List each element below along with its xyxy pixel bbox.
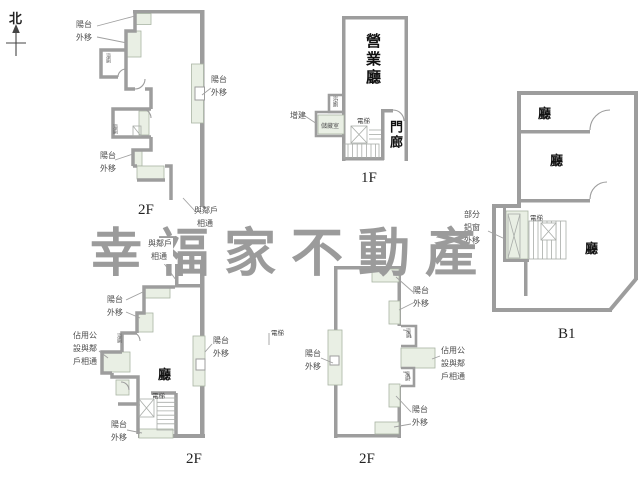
hall-label: 廳 <box>538 103 551 122</box>
floor-label-2f: 2F <box>186 451 202 468</box>
bath-label: 浴廁 <box>105 53 110 63</box>
bath-label: 浴廁 <box>112 124 117 134</box>
elevator-label: 電梯 <box>271 327 284 337</box>
neighbor-connected-label: 與鄰戶 相通 <box>194 205 218 231</box>
floor-label-b1: B1 <box>558 326 576 343</box>
floorplan-page: 北 幸福家不動產 陽台 外移 陽台 外移 陽台 外移 浴廁 浴廁 與鄰戶 相通 … <box>0 0 640 480</box>
bath-label: 浴廁 <box>116 333 121 343</box>
bath-label: 浴廁 <box>405 328 410 338</box>
floorplan-b1 <box>488 91 638 312</box>
floor-label-1f: 1F <box>361 170 377 187</box>
porch-label: 門廊 <box>386 120 405 150</box>
storage-label: 儲藏室 <box>321 121 339 130</box>
business-hall-label: 營業廳 <box>362 33 383 87</box>
balcony-out-label: 陽台 外移 <box>412 404 428 430</box>
elevator-label: 電梯 <box>530 212 543 222</box>
hall-label: 廳 <box>550 150 563 169</box>
occupy-public-label: 佔用公 設與鄰 戶相通 <box>73 330 97 368</box>
balcony-out-label: 陽台 外移 <box>107 294 123 320</box>
occupy-public-label: 佔用公 設與鄰 戶相通 <box>441 345 465 383</box>
balcony-out-label: 陽台 外移 <box>305 348 321 374</box>
balcony-out-label: 陽台 外移 <box>213 335 229 361</box>
bath-label: 浴廁 <box>404 371 409 381</box>
balcony-out-label: 陽台 外移 <box>76 19 92 45</box>
floorplan-2f-top-left <box>97 10 211 211</box>
north-arrow <box>6 24 26 56</box>
floor-label-2f: 2F <box>138 202 154 219</box>
elevator-label: 電梯 <box>152 390 165 400</box>
north-label: 北 <box>9 8 22 27</box>
hall-label: 廳 <box>158 364 171 383</box>
bath-label: 浴廁 <box>331 96 337 107</box>
addition-label: 增建 <box>290 110 306 123</box>
neighbor-connected-label: 與鄰戶 相通 <box>147 238 173 264</box>
elevator-label: 電梯 <box>357 115 370 125</box>
balcony-out-label: 陽台 外移 <box>211 74 227 100</box>
floorplan-2f-bottom-left <box>99 262 212 438</box>
balcony-out-label: 陽台 外移 <box>111 419 127 445</box>
balcony-out-label: 陽台 外移 <box>100 150 116 176</box>
floor-label-2f: 2F <box>359 451 375 468</box>
hall-label: 廳 <box>585 238 598 257</box>
balcony-out-label: 陽台 外移 <box>413 285 429 311</box>
